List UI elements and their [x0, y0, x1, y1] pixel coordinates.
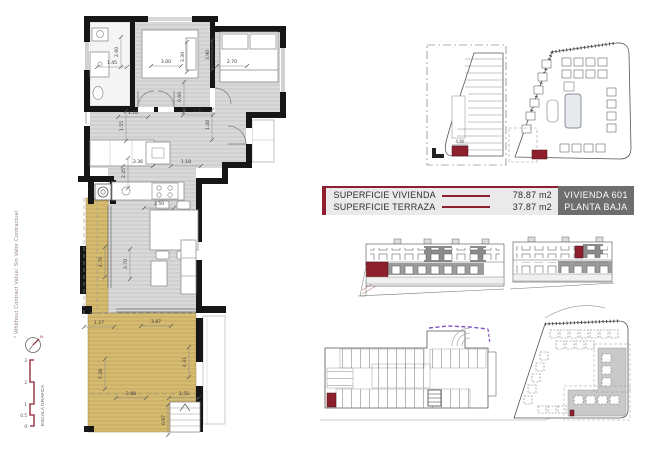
unit-name: VIVIENDA 601	[564, 190, 628, 200]
scale-tick: 2	[24, 380, 27, 385]
dim-label: 4.76	[98, 257, 104, 267]
highlighted-unit-location	[570, 410, 574, 416]
kitchen-counter	[90, 140, 170, 166]
surface-label: SUPERFICIE VIVIENDA	[334, 190, 436, 201]
dim-label: 1.40	[205, 120, 211, 130]
leader-line	[442, 195, 490, 197]
pool-icon	[565, 94, 581, 128]
surface-row-terraza: SUPERFICIE TERRAZA 37.87 m2	[334, 202, 552, 213]
dim-label: 2.45	[121, 168, 127, 178]
highlighted-unit-site	[532, 150, 547, 159]
north-arrow-icon: N	[26, 334, 44, 353]
dim-label: 2.60	[114, 47, 120, 57]
dim-label: 3.00	[161, 59, 171, 65]
elevation-front-2	[510, 237, 614, 318]
sofa-icon	[181, 240, 196, 294]
dim-label: 1.27	[94, 320, 104, 326]
dim-label: 1.18	[181, 159, 191, 165]
bed1-icon	[142, 30, 198, 78]
sideboard-icon	[151, 261, 167, 286]
scale-label: ESCALA GRAFICA	[40, 384, 46, 426]
dim-label: 2.70	[227, 59, 237, 65]
site-plan-overview	[509, 43, 631, 162]
drawing-canvas: 2.601.453.003.303.902.700.603.162.411.55…	[0, 0, 645, 451]
plan-sheet: 2.601.453.003.303.902.700.603.162.411.55…	[0, 0, 645, 451]
parking-dim-label: 4.80	[456, 139, 465, 144]
dim-label: 1.55	[119, 121, 125, 131]
dim-label: 1.45	[107, 60, 117, 66]
toilet-icon	[93, 87, 103, 100]
surface-table: SUPERFICIE VIVIENDA 78.87 m2 SUPERFICIE …	[326, 186, 558, 215]
scale-bar	[30, 360, 34, 426]
dim-label: 3.50	[154, 201, 164, 207]
site-plan-location	[514, 321, 630, 420]
side-passage	[203, 316, 225, 424]
leader-line	[442, 206, 490, 208]
dim-label: 3.90	[205, 50, 211, 60]
scale-tick: 0	[24, 424, 27, 429]
dim-label: 4.31	[182, 357, 188, 367]
dim-label: 2.41	[193, 108, 203, 114]
road-curve	[545, 306, 605, 318]
purple-boundary	[429, 326, 488, 329]
dim-label: 3.36	[133, 159, 143, 165]
entry-porch	[252, 120, 274, 162]
washer-icon	[95, 184, 111, 200]
graphic-scale: 3 2 1 0.5 0 ESCALA GRAFICA	[20, 358, 46, 429]
floor-name: PLANTA BAJA	[564, 202, 627, 212]
title-block: SUPERFICIE VIVIENDA 78.87 m2 SUPERFICIE …	[322, 186, 634, 215]
dim-label: 3.87	[151, 319, 161, 325]
dim-label: 5.28	[98, 369, 104, 379]
washbasin-icon	[92, 28, 108, 41]
surface-row-vivienda: SUPERFICIE VIVIENDA 78.87 m2	[334, 190, 552, 201]
apartment-floor-plan: 2.601.453.003.303.902.700.603.162.411.55…	[78, 16, 286, 437]
north-label: N	[40, 334, 43, 339]
surface-value: 37.87 m2	[500, 202, 552, 213]
elevation-front-1	[358, 239, 504, 296]
dim-label: 3.88	[126, 391, 136, 397]
surface-label: SUPERFICIE TERRAZA	[334, 202, 436, 213]
dim-label: 0.97	[161, 415, 167, 425]
highlighted-unit-parking	[452, 146, 468, 156]
site-plan-parking: 4.80	[427, 45, 506, 165]
stairs-icon	[170, 402, 200, 432]
oven-icon	[146, 142, 170, 164]
scale-tick: 1	[24, 402, 27, 407]
dim-label: 0.60	[177, 92, 183, 102]
bed2-icon	[220, 32, 278, 82]
unit-box: VIVIENDA 601 PLANTA BAJA	[558, 186, 634, 215]
kitchen-island	[112, 182, 184, 200]
dim-label: 3.30	[180, 52, 186, 62]
disclaimer-note: * Whithout Contract Value/ Sin Valor Con…	[14, 186, 20, 338]
scale-tick: 3	[24, 358, 27, 363]
stove-icon	[152, 183, 178, 199]
surface-value: 78.87 m2	[500, 190, 552, 201]
dim-label: 1.55	[179, 391, 189, 397]
dim-label: 3.70	[123, 259, 129, 269]
scale-tick: 0.5	[20, 413, 27, 418]
dim-label: 3.16	[128, 110, 138, 116]
highlighted-unit-garage	[327, 393, 336, 407]
stair-core	[428, 390, 441, 406]
